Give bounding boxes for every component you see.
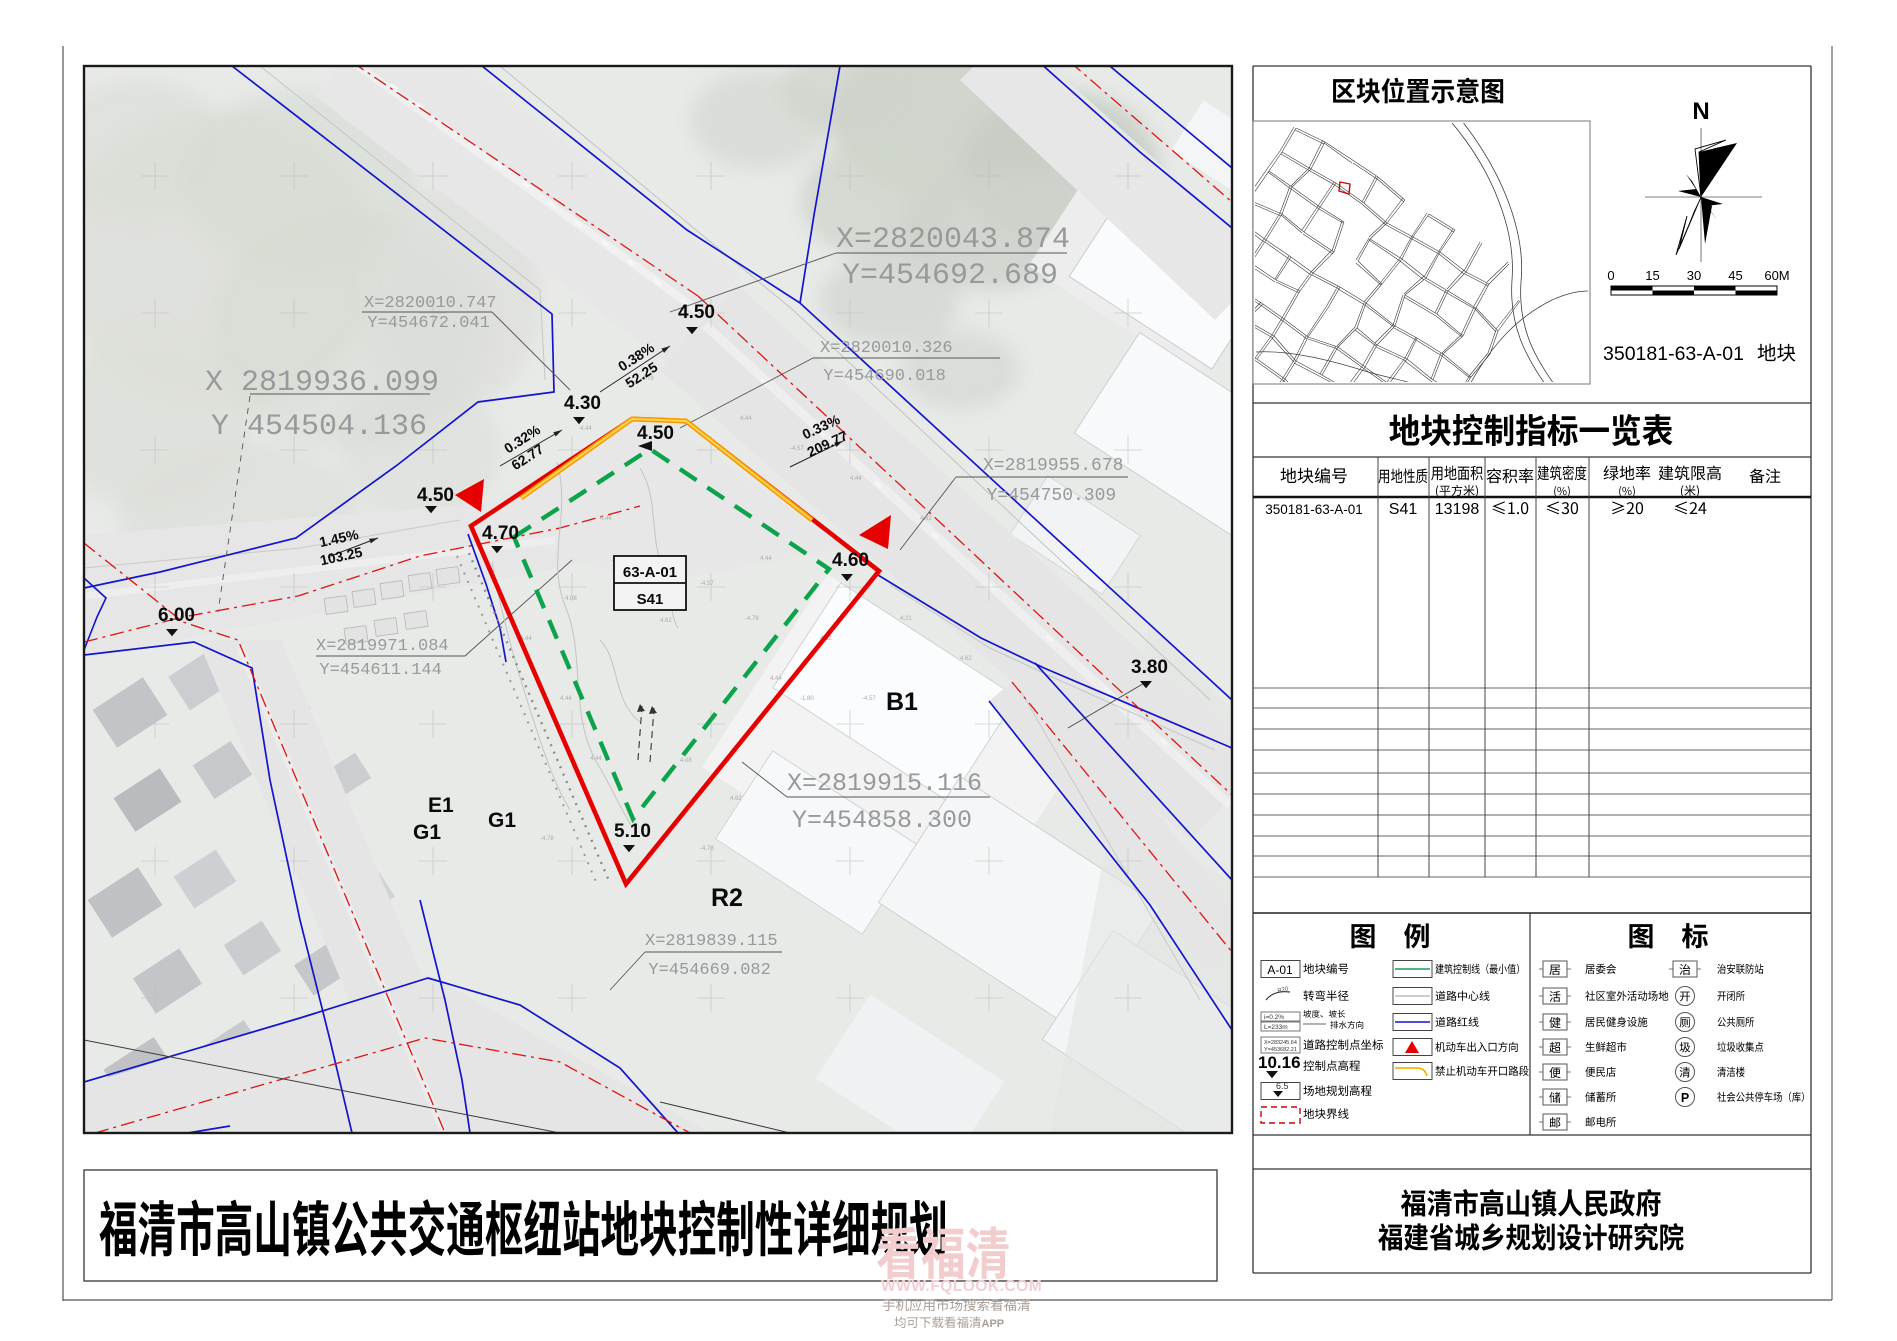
svg-text:S41: S41 — [637, 591, 664, 608]
svg-text:5.10: 5.10 — [614, 821, 651, 842]
svg-text:4.44: 4.44 — [850, 476, 862, 482]
svg-text:-4.57: -4.57 — [790, 446, 804, 452]
svg-text:Y=454611.144: Y=454611.144 — [319, 661, 441, 680]
svg-text:4.44: 4.44 — [580, 426, 592, 432]
svg-text:G1: G1 — [413, 821, 441, 844]
svg-text:4.50: 4.50 — [417, 485, 454, 506]
svg-text:APP: APP — [982, 1318, 1005, 1330]
svg-text:Y 454504.136: Y 454504.136 — [211, 410, 427, 444]
svg-text:4.62: 4.62 — [730, 796, 742, 802]
svg-text:4.44: 4.44 — [740, 416, 752, 422]
svg-text:X=2819915.116: X=2819915.116 — [787, 769, 982, 798]
svg-text:WWW.FQLOOK.COM: WWW.FQLOOK.COM — [881, 1278, 1042, 1295]
svg-text:i=0.2%: i=0.2% — [1264, 1014, 1284, 1021]
svg-text:-4.78: -4.78 — [540, 836, 554, 842]
svg-text:X=283245.64: X=283245.64 — [1264, 1040, 1297, 1046]
svg-text:4.62: 4.62 — [960, 656, 972, 662]
svg-text:P: P — [1681, 1091, 1689, 1105]
svg-text:L=233m: L=233m — [1264, 1024, 1288, 1031]
svg-text:X=2820010.326: X=2820010.326 — [820, 339, 953, 358]
svg-text:X=2819955.678: X=2819955.678 — [983, 456, 1123, 476]
svg-text:X=2819839.115: X=2819839.115 — [645, 932, 778, 951]
svg-text:4.50: 4.50 — [637, 423, 674, 444]
svg-text:-4.78: -4.78 — [745, 616, 759, 622]
svg-text:350181-63-A-01: 350181-63-A-01 — [1265, 502, 1363, 517]
svg-text:3.80: 3.80 — [1131, 657, 1168, 678]
svg-text:X=2820043.874: X=2820043.874 — [836, 223, 1070, 257]
svg-text:A-01: A-01 — [1267, 963, 1293, 977]
svg-text:63-A-01: 63-A-01 — [623, 564, 677, 581]
svg-text:X=2819971.084: X=2819971.084 — [316, 637, 449, 656]
svg-text:Y=454669.082: Y=454669.082 — [648, 961, 770, 980]
svg-text:4.62: 4.62 — [920, 516, 932, 522]
svg-text:4.70: 4.70 — [482, 523, 519, 544]
svg-text:4.62: 4.62 — [660, 618, 672, 624]
svg-text:4.21: 4.21 — [900, 616, 912, 622]
svg-text:G1: G1 — [488, 809, 516, 832]
svg-text:4.44: 4.44 — [590, 756, 602, 762]
svg-text:Y=454692.689: Y=454692.689 — [842, 259, 1058, 293]
svg-text:15: 15 — [1645, 268, 1659, 283]
svg-text:E1: E1 — [428, 794, 454, 817]
svg-text:45: 45 — [1728, 268, 1742, 283]
svg-text:R20: R20 — [1277, 986, 1290, 995]
svg-text:-4.78: -4.78 — [700, 846, 714, 852]
svg-text:-4.57: -4.57 — [700, 581, 714, 587]
svg-text:6.5: 6.5 — [1276, 1081, 1289, 1091]
svg-text:Y=454750.309: Y=454750.309 — [987, 486, 1117, 506]
svg-text:4.44: 4.44 — [600, 516, 612, 522]
svg-text:4.08: 4.08 — [565, 596, 577, 602]
svg-text:6.00: 6.00 — [158, 605, 195, 626]
svg-text:4.08: 4.08 — [680, 758, 692, 764]
svg-text:R2: R2 — [711, 884, 743, 912]
svg-text:-4.57: -4.57 — [862, 696, 876, 702]
svg-text:S41: S41 — [1389, 501, 1418, 518]
svg-text:Y=454858.300: Y=454858.300 — [792, 806, 972, 835]
svg-text:Y=454690.018: Y=454690.018 — [823, 367, 945, 386]
svg-text:60M: 60M — [1764, 268, 1789, 283]
svg-text:0: 0 — [1607, 268, 1614, 283]
svg-text:350181-63-A-01: 350181-63-A-01 — [1603, 343, 1744, 365]
svg-text:4.44: 4.44 — [760, 556, 772, 562]
svg-text:X=2820010.747: X=2820010.747 — [364, 294, 497, 313]
svg-text:N: N — [1692, 98, 1709, 125]
svg-text:10.16: 10.16 — [1258, 1053, 1301, 1072]
svg-text:4.50: 4.50 — [678, 302, 715, 323]
svg-text:X 2819936.099: X 2819936.099 — [205, 366, 439, 400]
svg-text:4.60: 4.60 — [832, 550, 869, 571]
svg-text:30: 30 — [1687, 268, 1701, 283]
svg-text:4.30: 4.30 — [564, 393, 601, 414]
svg-text:4.44: 4.44 — [560, 696, 572, 702]
svg-text:B1: B1 — [886, 688, 918, 716]
svg-text:4.44: 4.44 — [770, 676, 782, 682]
svg-text:-1.80: -1.80 — [800, 696, 814, 702]
svg-text:13198: 13198 — [1435, 501, 1480, 518]
svg-text:Y=454672.041: Y=454672.041 — [367, 314, 489, 333]
